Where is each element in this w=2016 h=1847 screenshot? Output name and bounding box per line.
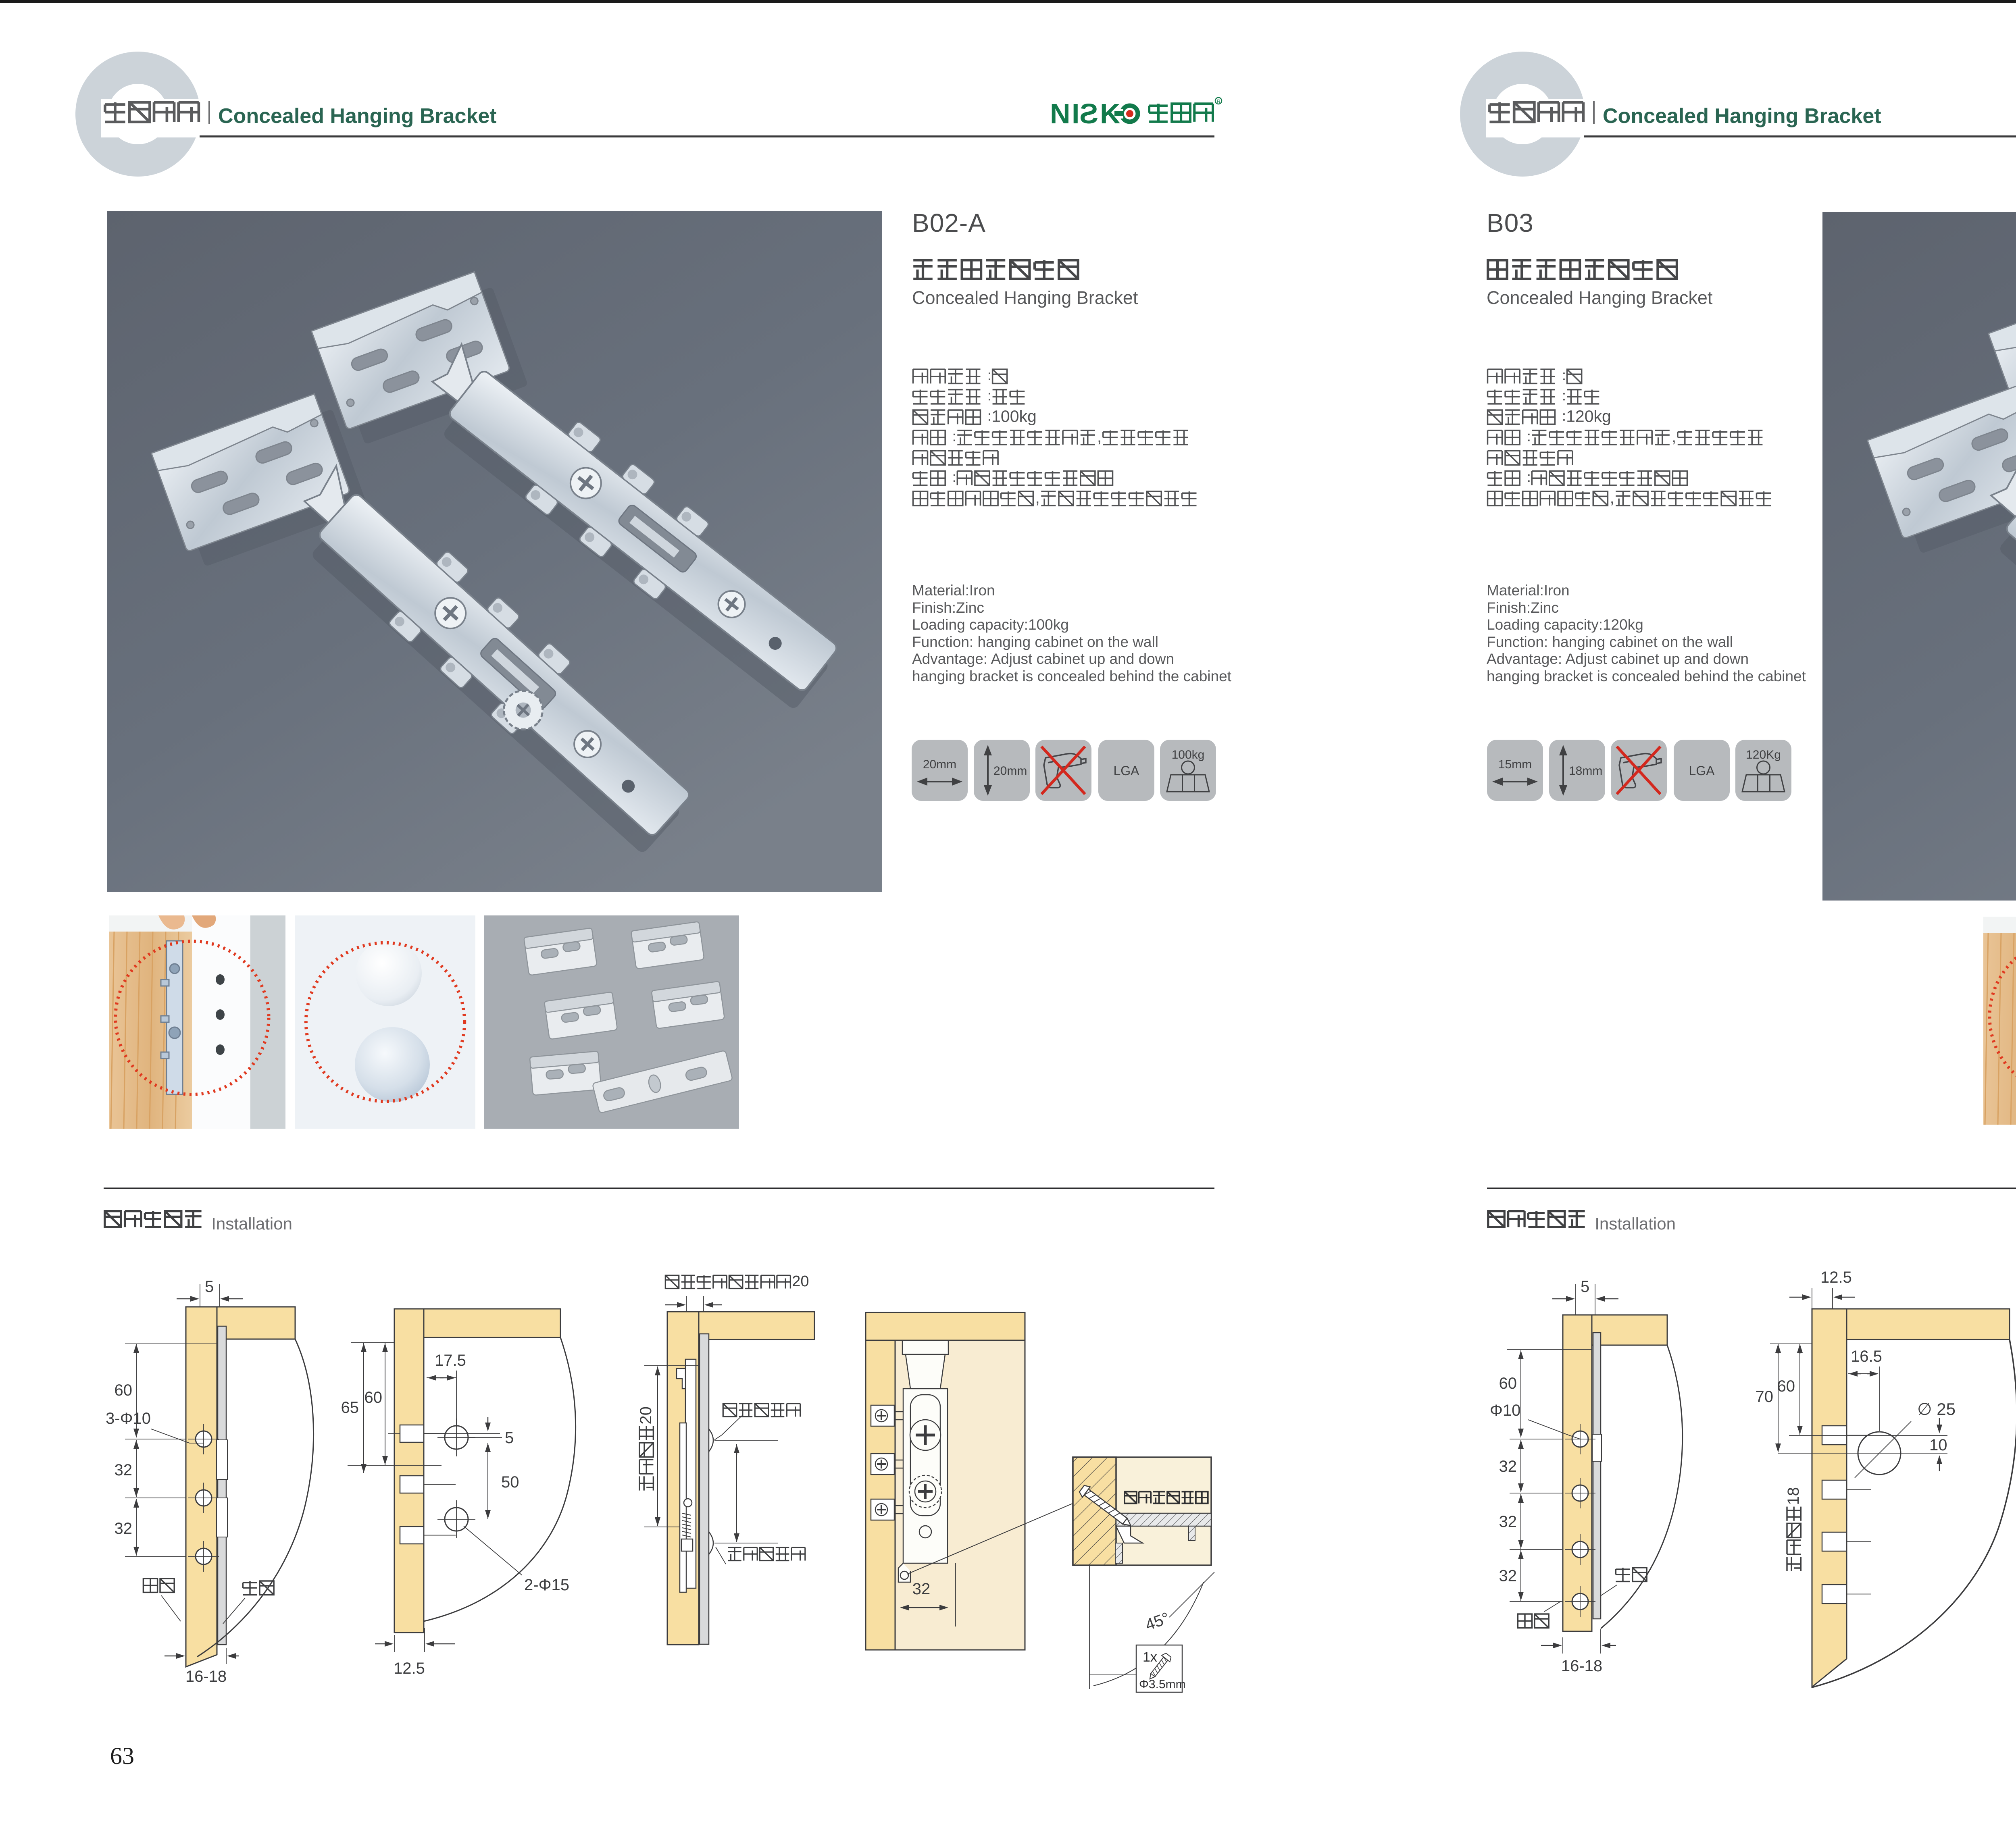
svg-text:15mm: 15mm [1498,758,1532,771]
svg-text:60: 60 [115,1381,133,1399]
svg-text:70: 70 [1756,1388,1774,1406]
svg-text:Concealed Hanging Bracket: Concealed Hanging Bracket [1603,104,1881,128]
svg-text:50: 50 [501,1473,519,1491]
svg-text:LGA: LGA [1113,763,1139,778]
svg-text:32: 32 [1499,1513,1517,1531]
svg-text:Φ10: Φ10 [1490,1402,1520,1419]
svg-text:5: 5 [505,1429,514,1447]
svg-text:Φ3.5mm: Φ3.5mm [1139,1678,1186,1691]
svg-text:S: S [1079,98,1098,129]
svg-text:Installation: Installation [211,1214,292,1233]
svg-text:2-Φ15: 2-Φ15 [524,1576,569,1594]
svg-text:,: , [1097,427,1102,446]
svg-text:I: I [1072,98,1079,129]
svg-text:100kg: 100kg [991,407,1037,426]
svg-text:R: R [1217,98,1220,104]
svg-text:18: 18 [1785,1487,1802,1505]
svg-text:60: 60 [1777,1377,1795,1395]
svg-text:120kg: 120kg [1566,407,1611,426]
svg-text:120Kg: 120Kg [1746,748,1781,761]
svg-text:LGA: LGA [1689,763,1715,778]
svg-text:32: 32 [115,1461,133,1479]
svg-text:12.5: 12.5 [1820,1269,1852,1286]
svg-text:20mm: 20mm [923,758,956,771]
svg-text:32: 32 [912,1580,931,1598]
svg-text:5: 5 [205,1278,214,1296]
svg-text:45°: 45° [1143,1609,1172,1634]
svg-text:1x: 1x [1143,1649,1157,1665]
svg-text:32: 32 [1499,1567,1517,1585]
svg-text:32: 32 [115,1520,133,1537]
svg-text:16.5: 16.5 [1851,1348,1882,1365]
svg-text:32: 32 [1499,1458,1517,1475]
svg-text:N: N [1050,98,1070,129]
svg-text:60: 60 [1499,1375,1517,1392]
svg-text:Installation: Installation [1595,1214,1676,1233]
svg-text:∅ 25: ∅ 25 [1917,1400,1956,1419]
svg-text:16-18: 16-18 [185,1668,227,1685]
svg-text:20: 20 [637,1406,655,1425]
svg-text:5: 5 [1581,1278,1589,1296]
svg-text:12.5: 12.5 [394,1660,425,1677]
svg-text:65: 65 [341,1399,359,1416]
svg-text:16-18: 16-18 [1561,1657,1602,1675]
svg-text:20: 20 [792,1273,809,1290]
svg-text:,: , [1035,489,1040,507]
svg-text:Concealed Hanging Bracket: Concealed Hanging Bracket [218,104,497,128]
svg-text:3-Φ10: 3-Φ10 [106,1410,151,1427]
svg-text:,: , [1672,427,1676,446]
svg-text:,: , [1610,489,1614,507]
svg-text:17.5: 17.5 [435,1352,466,1369]
svg-text:20mm: 20mm [993,764,1027,778]
svg-text:10: 10 [1929,1436,1947,1454]
svg-text:100kg: 100kg [1172,748,1205,761]
svg-text:18mm: 18mm [1569,764,1602,778]
svg-text:60: 60 [364,1389,383,1406]
